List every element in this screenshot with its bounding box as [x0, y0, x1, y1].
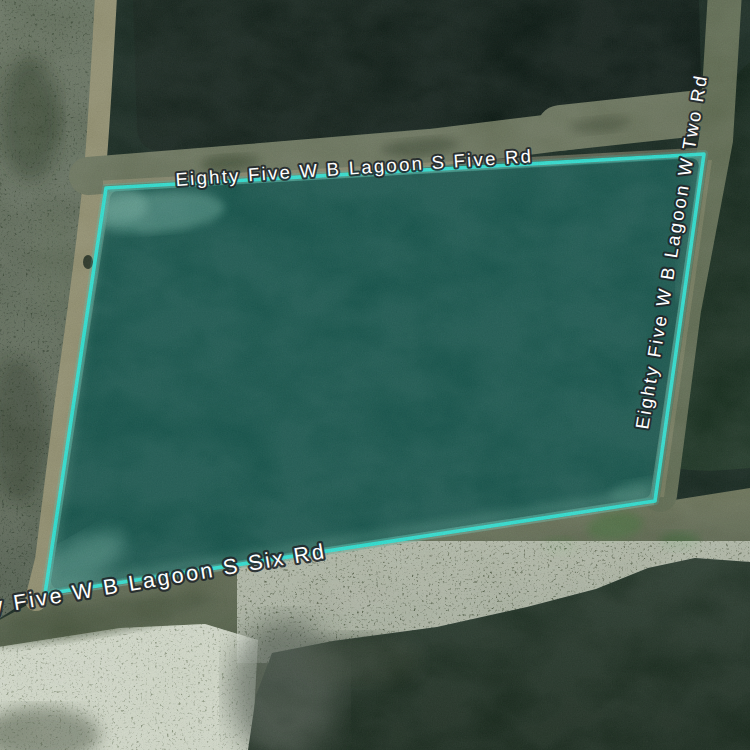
- satellite-map-canvas[interactable]: Eighty Five W B Lagoon S Five Rd Eighty …: [0, 0, 750, 750]
- map-scene: Eighty Five W B Lagoon S Five Rd Eighty …: [0, 0, 750, 750]
- grain-dark-overlay: [0, 0, 750, 750]
